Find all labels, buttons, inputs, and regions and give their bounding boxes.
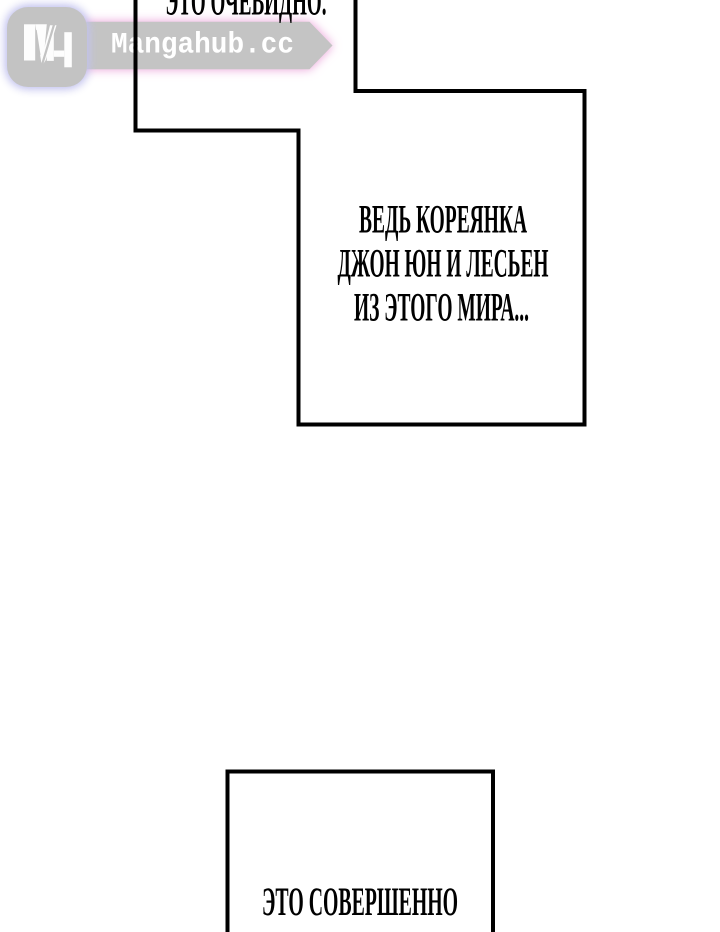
svg-text:ИЗ ЭТОГО МИРА...: ИЗ ЭТОГО МИРА... xyxy=(354,285,529,330)
svg-text:ЭТО СОВЕРШЕННО: ЭТО СОВЕРШЕННО xyxy=(262,879,458,924)
svg-text:Mangahub.cc: Mangahub.cc xyxy=(111,29,294,63)
svg-text:ВЕДЬ КОРЕЯНКА: ВЕДЬ КОРЕЯНКА xyxy=(359,197,527,242)
svg-text:ДЖОН ЮН И ЛЕСЬЕН: ДЖОН ЮН И ЛЕСЬЕН xyxy=(338,241,549,286)
